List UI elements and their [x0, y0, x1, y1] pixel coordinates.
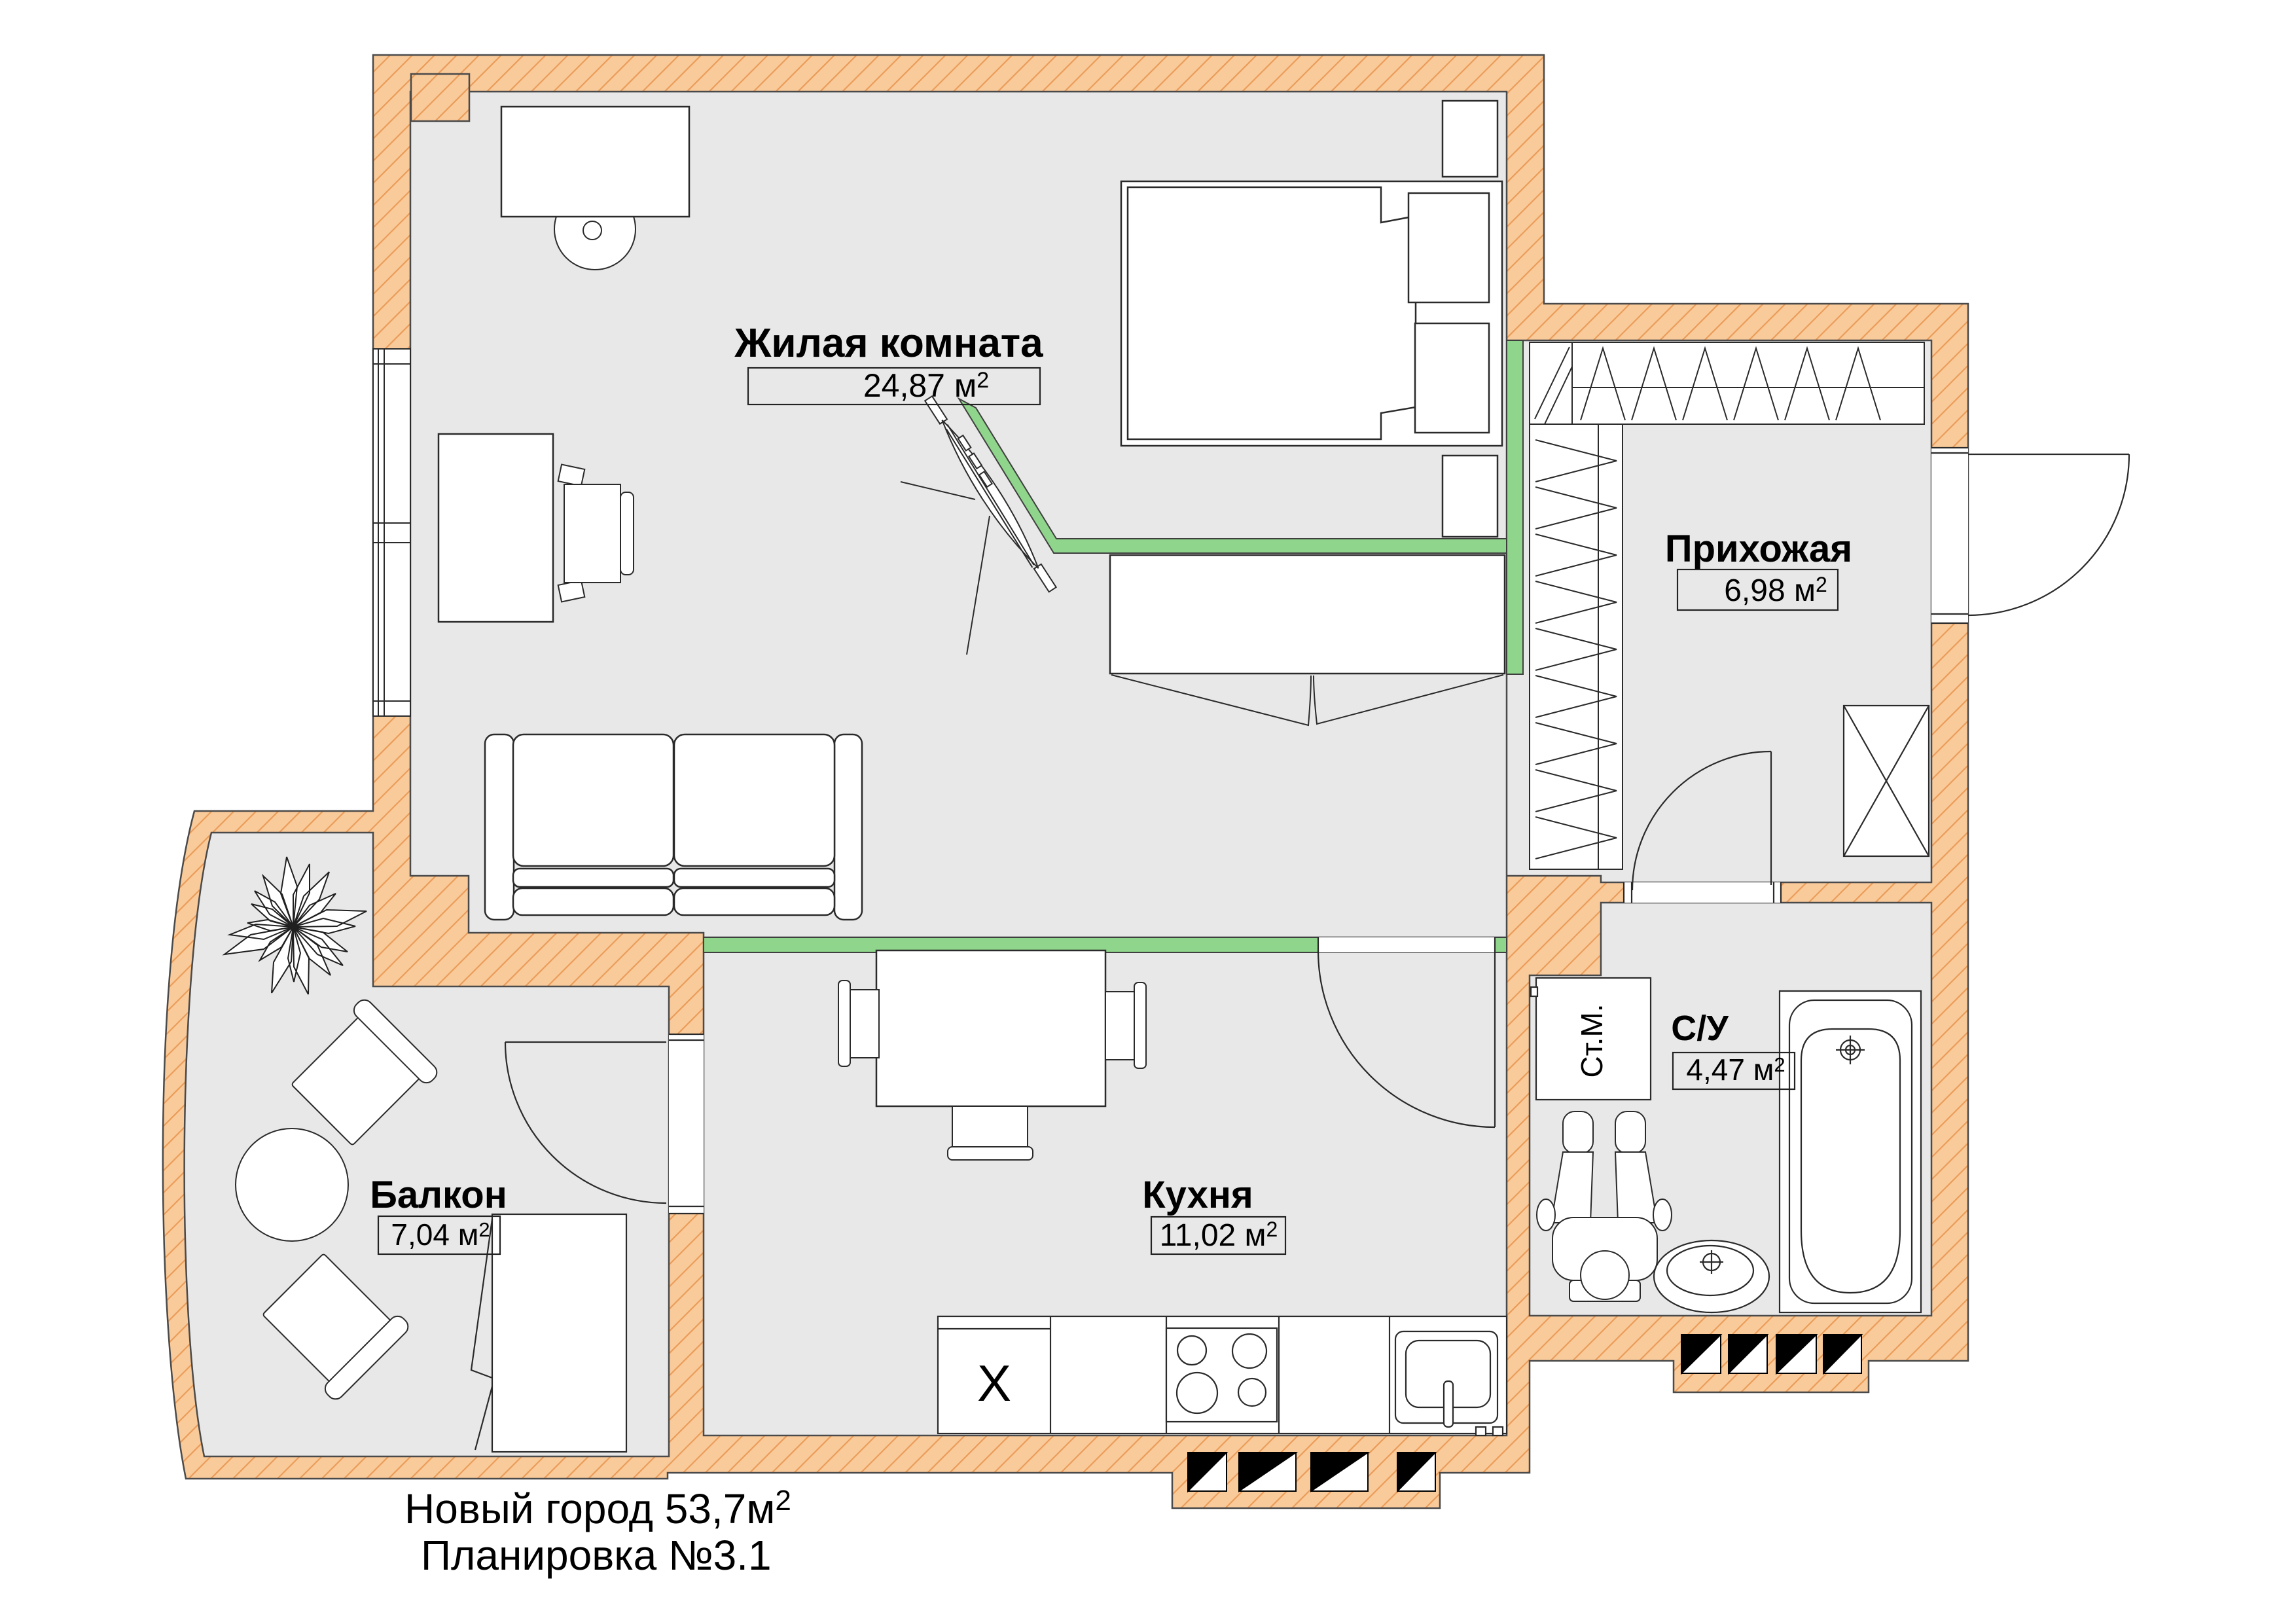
svg-text:Жилая комната: Жилая комната: [734, 321, 1043, 366]
svg-text:Ст.М.: Ст.М.: [1575, 1003, 1609, 1077]
svg-text:6,98 м2: 6,98 м2: [1724, 573, 1827, 608]
svg-text:24,87 м2: 24,87 м2: [863, 367, 989, 404]
svg-text:Планировка №3.1: Планировка №3.1: [421, 1532, 772, 1579]
svg-text:Новый город 53,7м2: Новый город 53,7м2: [404, 1485, 791, 1532]
svg-text:Прихожая: Прихожая: [1665, 528, 1852, 570]
svg-text:Балкон: Балкон: [370, 1174, 507, 1216]
svg-text:Кухня: Кухня: [1142, 1174, 1253, 1216]
svg-text:4,47 м2: 4,47 м2: [1686, 1053, 1785, 1087]
svg-text:7,04 м2: 7,04 м2: [391, 1218, 490, 1252]
svg-text:С/У: С/У: [1671, 1009, 1729, 1048]
svg-text:X: X: [977, 1354, 1011, 1412]
svg-text:11,02 м2: 11,02 м2: [1160, 1218, 1278, 1253]
